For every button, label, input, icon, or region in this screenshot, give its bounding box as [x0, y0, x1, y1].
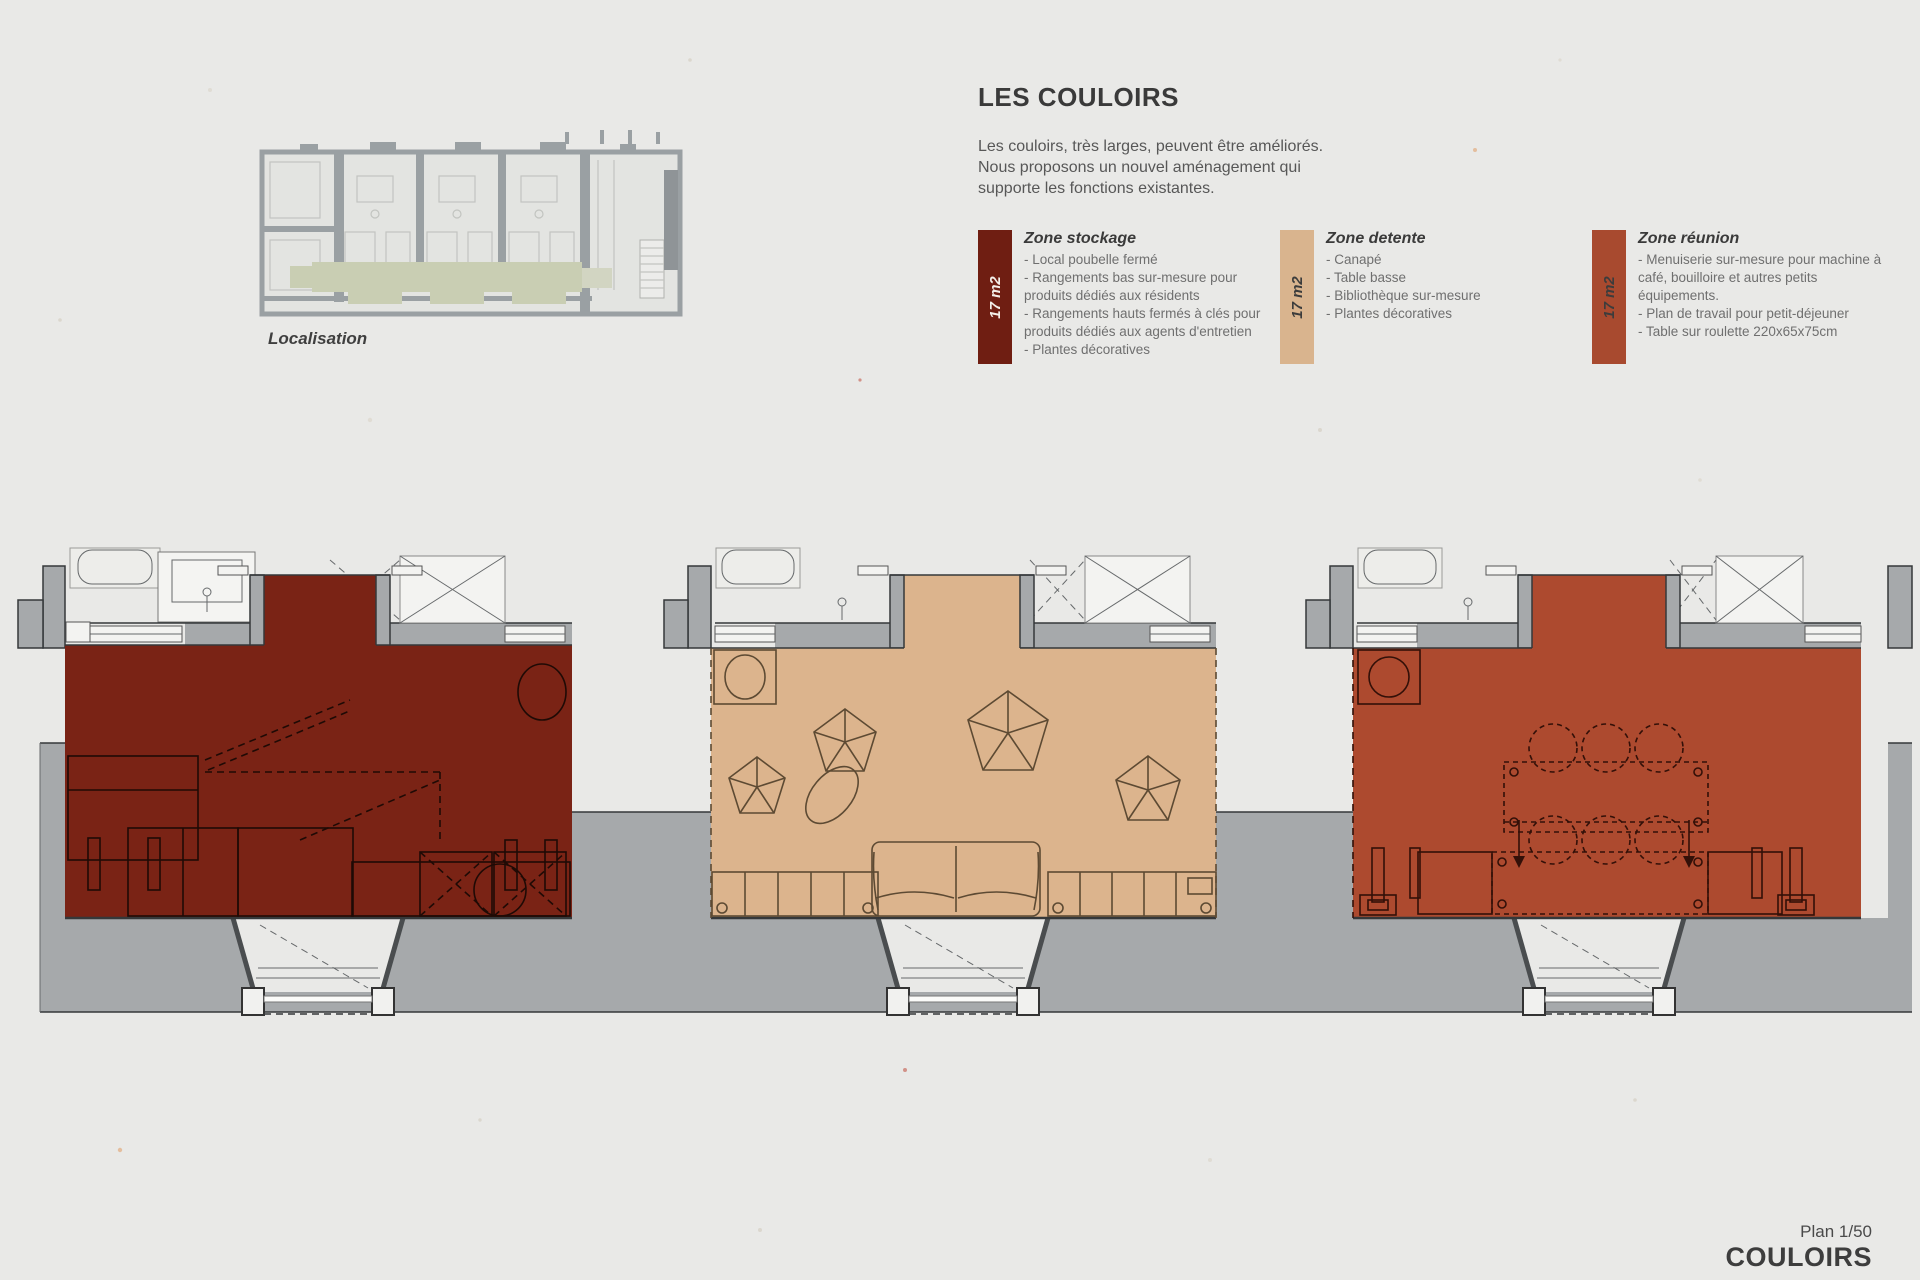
zone-item: - Rangements bas sur-mesure pour produit… [1024, 269, 1262, 305]
floor-plan-svg [0, 0, 1920, 1280]
zone-item: - Canapé [1326, 251, 1576, 269]
zone-reunion-title: Zone réunion [1638, 230, 1896, 248]
zone-item: - Plan de travail pour petit-déjeuner [1638, 305, 1896, 323]
zone-item: - Table basse [1326, 269, 1576, 287]
zone-reunion-area-label: 17 m2 [1601, 276, 1618, 319]
page-title: LES COULOIRS [978, 82, 1179, 113]
zone-item: - Plantes décoratives [1024, 341, 1262, 359]
zone-stockage-color-bar: 17 m2 [978, 230, 1012, 364]
zone-item: - Menuiserie sur-mesure pour machine à c… [1638, 251, 1896, 305]
zone-reunion-color-bar: 17 m2 [1592, 230, 1626, 364]
localisation-caption: Localisation [268, 329, 367, 349]
plan-unit-reunion [1353, 648, 1861, 918]
zone-detente-title: Zone detente [1326, 230, 1576, 248]
zone-item: - Bibliothèque sur-mesure [1326, 287, 1576, 305]
zone-detente-area-label: 17 m2 [1289, 276, 1306, 319]
zone-item: - Rangements hauts fermés à clés pour pr… [1024, 305, 1262, 341]
plan-unit-detente [711, 648, 1216, 918]
zone-stockage-area-label: 17 m2 [987, 276, 1004, 319]
plan-unit-stockage [65, 645, 572, 918]
legend-zone-detente: 17 m2 Zone detente - Canapé - Table bass… [1280, 230, 1576, 364]
zone-item: - Table sur roulette 220x65x75cm [1638, 323, 1896, 341]
localisation-minimap [262, 130, 680, 314]
plan-title: COULOIRS [1725, 1242, 1872, 1273]
plan-scale-label: Plan 1/50 [1800, 1222, 1872, 1242]
zone-item: - Plantes décoratives [1326, 305, 1576, 323]
zone-detente-color-bar: 17 m2 [1280, 230, 1314, 364]
zone-stockage-title: Zone stockage [1024, 230, 1262, 248]
legend-zone-reunion: 17 m2 Zone réunion - Menuiserie sur-mesu… [1592, 230, 1896, 364]
zone-item: - Local poubelle fermé [1024, 251, 1262, 269]
legend-zone-stockage: 17 m2 Zone stockage - Local poubelle fer… [978, 230, 1262, 364]
poster-page: { "page": { "title": "LES COULOIRS", "in… [0, 0, 1920, 1280]
intro-paragraph: Les couloirs, très larges, peuvent être … [978, 136, 1330, 199]
